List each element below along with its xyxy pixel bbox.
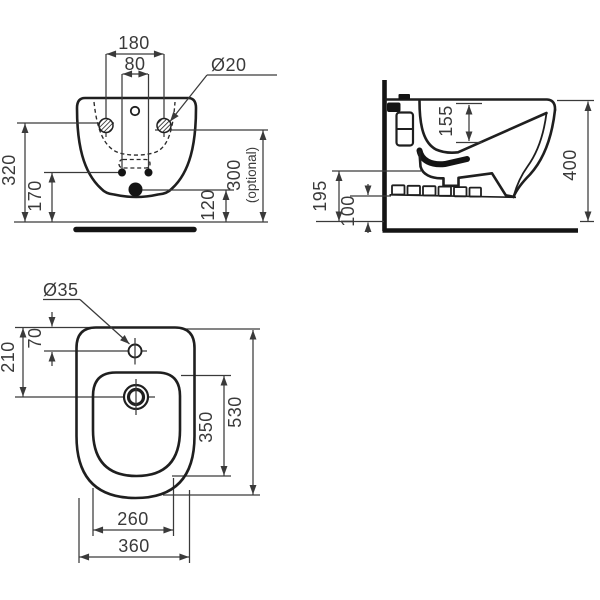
- dim-label-drain-height: 120: [198, 189, 218, 221]
- technical-drawing-canvas: 180 80 Ø20 320 170 120 300 (optional): [0, 0, 600, 600]
- dim-label-bowl-width: 260: [117, 509, 149, 529]
- tooth: [408, 186, 421, 195]
- front-view: 180 80 Ø20 320 170 120 300 (optional): [0, 33, 277, 230]
- tooth: [392, 185, 405, 194]
- rim-back-tab: [399, 94, 411, 100]
- wall-step-detail: [387, 103, 401, 113]
- supply-hole-right: [145, 169, 153, 177]
- dim-label-tap-offset: 70: [25, 327, 45, 348]
- dim-label-optional-height: 300: [224, 159, 244, 191]
- dim-label-drain-offset: 210: [0, 341, 18, 373]
- supply-hole-left: [118, 169, 126, 177]
- dim-label-optional-note: (optional): [244, 147, 259, 203]
- tooth: [470, 188, 482, 197]
- dim-label-bowl-length: 350: [196, 411, 216, 443]
- bidet-front-body-outline: [77, 98, 196, 197]
- dim-label-underside-front: 195: [310, 180, 330, 212]
- leader-arrow-tap-dia: [80, 300, 130, 345]
- dim-label-bowl-depth: 155: [436, 105, 456, 137]
- dim-label-overall-height: 400: [560, 149, 580, 181]
- dim-label-supply-height: 170: [25, 180, 45, 212]
- tooth: [454, 187, 467, 196]
- tooth: [423, 186, 436, 195]
- drain-hole: [129, 183, 143, 197]
- side-view: 155 400 195 100: [310, 80, 594, 233]
- fixing-hole-right: [157, 119, 171, 133]
- teeth-baseline: [390, 195, 517, 198]
- dim-label-tap-dia: Ø35: [43, 280, 79, 300]
- bidet-technical-drawing: 180 80 Ø20 320 170 120 300 (optional): [0, 0, 600, 600]
- dim-label-fixing-spacing: 180: [118, 33, 150, 53]
- rim-top-line: [386, 100, 555, 111]
- dim-label-fixing-height: 320: [0, 154, 19, 186]
- tooth: [439, 187, 452, 196]
- hidden-channel-outline: [119, 160, 150, 169]
- dim-label-supply-spacing: 80: [124, 54, 145, 74]
- top-view: Ø35 70 210 350 530 260 360: [0, 280, 260, 563]
- dim-label-fixing-dia: Ø20: [211, 55, 247, 75]
- dim-label-overall-width: 360: [118, 536, 150, 556]
- overflow-hole: [131, 107, 139, 115]
- dim-label-underside-rear: 100: [338, 195, 358, 227]
- dim-label-overall-length: 530: [225, 396, 245, 428]
- fixing-hole-left: [99, 119, 113, 133]
